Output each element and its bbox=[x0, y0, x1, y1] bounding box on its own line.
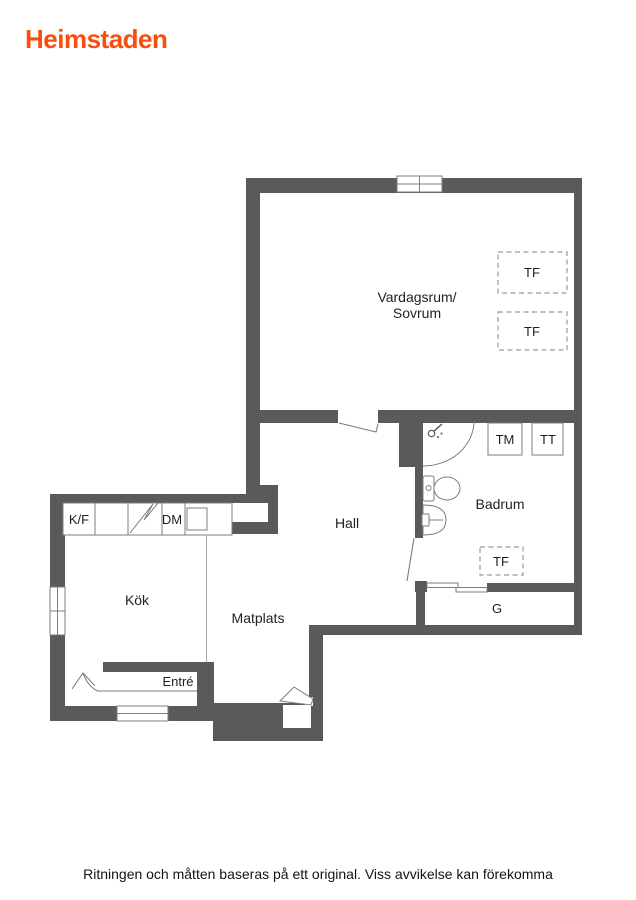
label-tf-2: TF bbox=[524, 324, 540, 339]
floor-plan-drawing: Vardagsrum/ Sovrum TF TF TM TT Badrum TF… bbox=[0, 0, 636, 860]
door-recess bbox=[283, 705, 311, 728]
wall-segment bbox=[309, 625, 582, 635]
label-living-room-line2: Sovrum bbox=[393, 305, 441, 321]
shower-icon bbox=[423, 421, 474, 466]
walls bbox=[50, 178, 582, 741]
toilet-icon bbox=[423, 476, 460, 501]
kitchen-sink-icon bbox=[187, 508, 207, 530]
label-dishwasher: DM bbox=[162, 512, 182, 527]
label-dining: Matplats bbox=[232, 610, 285, 626]
window-top bbox=[397, 176, 442, 192]
sink-icon bbox=[422, 505, 446, 535]
label-tumble-dryer: TT bbox=[540, 432, 556, 447]
wall-segment bbox=[487, 583, 574, 592]
wall-segment bbox=[50, 706, 117, 721]
label-entry: Entré bbox=[162, 674, 193, 689]
wall-segment bbox=[415, 467, 423, 538]
label-wardrobe: G bbox=[492, 601, 502, 616]
floor-plan-page: Heimstaden bbox=[0, 0, 636, 900]
wall-segment bbox=[574, 178, 582, 635]
label-tf-bathroom: TF bbox=[493, 554, 509, 569]
label-hall: Hall bbox=[335, 515, 359, 531]
wall-segment bbox=[197, 662, 214, 721]
window-left bbox=[50, 587, 65, 635]
wall-segment bbox=[246, 193, 260, 488]
window-bottom bbox=[117, 706, 168, 721]
wall-segment bbox=[50, 494, 278, 503]
disclaimer-text: Ritningen och måtten baseras på ett orig… bbox=[18, 866, 618, 882]
bathroom-door-swing bbox=[407, 538, 414, 581]
door-leaf bbox=[280, 687, 313, 705]
label-fridge-freezer: K/F bbox=[69, 512, 89, 527]
wall-segment bbox=[378, 410, 582, 423]
living-room-door-swing bbox=[339, 423, 378, 432]
label-bathroom: Badrum bbox=[475, 496, 524, 512]
wall-segment bbox=[232, 522, 278, 534]
label-kitchen: Kök bbox=[125, 592, 150, 608]
wall-segment bbox=[416, 583, 425, 625]
wall-segment bbox=[103, 662, 208, 672]
wall-segment bbox=[399, 423, 423, 467]
wall-segment bbox=[309, 625, 323, 741]
label-washing-machine: TM bbox=[496, 432, 515, 447]
sliding-door bbox=[427, 583, 487, 592]
balcony-door bbox=[280, 687, 313, 728]
wall-segment bbox=[246, 410, 338, 423]
label-living-room-line1: Vardagsrum/ bbox=[377, 289, 456, 305]
label-tf-1: TF bbox=[524, 265, 540, 280]
